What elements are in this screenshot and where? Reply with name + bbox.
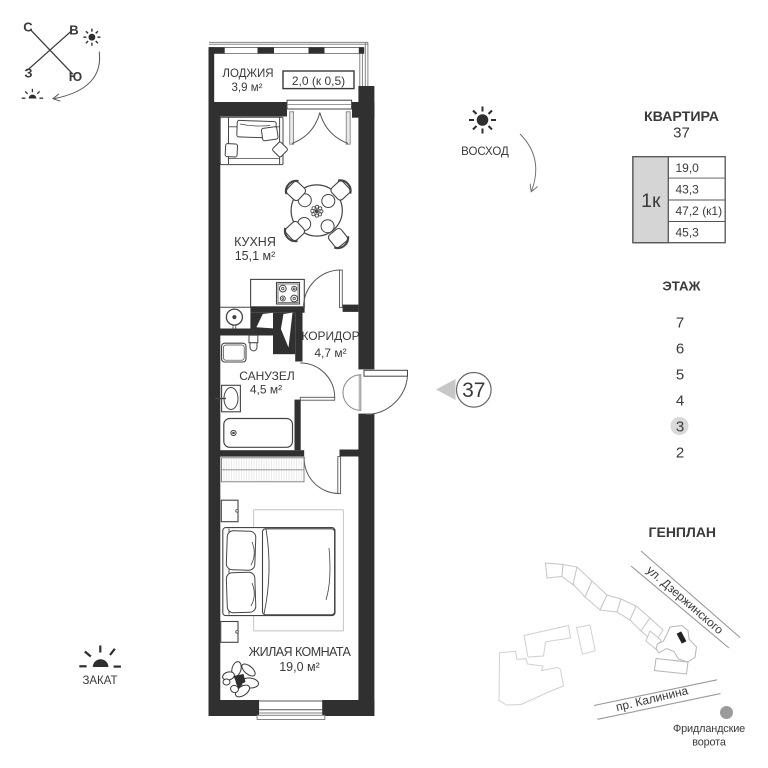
svg-text:ЗАКАТ: ЗАКАТ xyxy=(82,675,117,687)
svg-text:7: 7 xyxy=(676,314,684,331)
svg-text:З: З xyxy=(24,66,32,81)
svg-text:КВАРТИРА: КВАРТИРА xyxy=(644,109,719,125)
svg-text:3: 3 xyxy=(676,418,684,435)
svg-text:37: 37 xyxy=(673,125,690,142)
svg-text:ЛОДЖИЯ: ЛОДЖИЯ xyxy=(222,68,273,80)
svg-text:43,3: 43,3 xyxy=(676,182,700,196)
svg-text:5: 5 xyxy=(676,366,684,383)
svg-text:4,7 м²: 4,7 м² xyxy=(314,346,346,360)
svg-text:КУХНЯ: КУХНЯ xyxy=(234,235,276,249)
svg-text:4: 4 xyxy=(676,392,684,409)
svg-text:3,9 м²: 3,9 м² xyxy=(232,82,263,94)
svg-text:ЖИЛАЯ КОМНАТА: ЖИЛАЯ КОМНАТА xyxy=(249,645,352,659)
svg-text:45,3: 45,3 xyxy=(676,225,700,239)
svg-text:ВОСХОД: ВОСХОД xyxy=(461,146,509,158)
svg-text:19,0: 19,0 xyxy=(676,161,700,175)
svg-text:2: 2 xyxy=(676,444,684,461)
svg-text:С: С xyxy=(23,20,33,35)
svg-text:1к: 1к xyxy=(641,190,661,212)
svg-text:Фридландские: Фридландские xyxy=(673,723,745,735)
svg-text:2,0 (к 0,5): 2,0 (к 0,5) xyxy=(292,74,345,88)
svg-text:Ю: Ю xyxy=(69,69,82,84)
svg-text:47,2 (к1): 47,2 (к1) xyxy=(676,204,723,218)
svg-text:ЭТАЖ: ЭТАЖ xyxy=(662,279,700,294)
svg-text:ГЕНПЛАН: ГЕНПЛАН xyxy=(649,524,717,540)
svg-text:37: 37 xyxy=(462,379,485,402)
svg-text:4,5 м²: 4,5 м² xyxy=(250,383,282,397)
svg-text:15,1 м²: 15,1 м² xyxy=(235,249,276,263)
svg-text:КОРИДОР: КОРИДОР xyxy=(301,329,359,343)
svg-text:19,0 м²: 19,0 м² xyxy=(279,660,320,674)
svg-text:В: В xyxy=(69,23,78,38)
svg-text:САНУЗЕЛ: САНУЗЕЛ xyxy=(239,369,295,383)
svg-text:ворота: ворота xyxy=(692,737,727,749)
svg-text:6: 6 xyxy=(676,340,684,357)
